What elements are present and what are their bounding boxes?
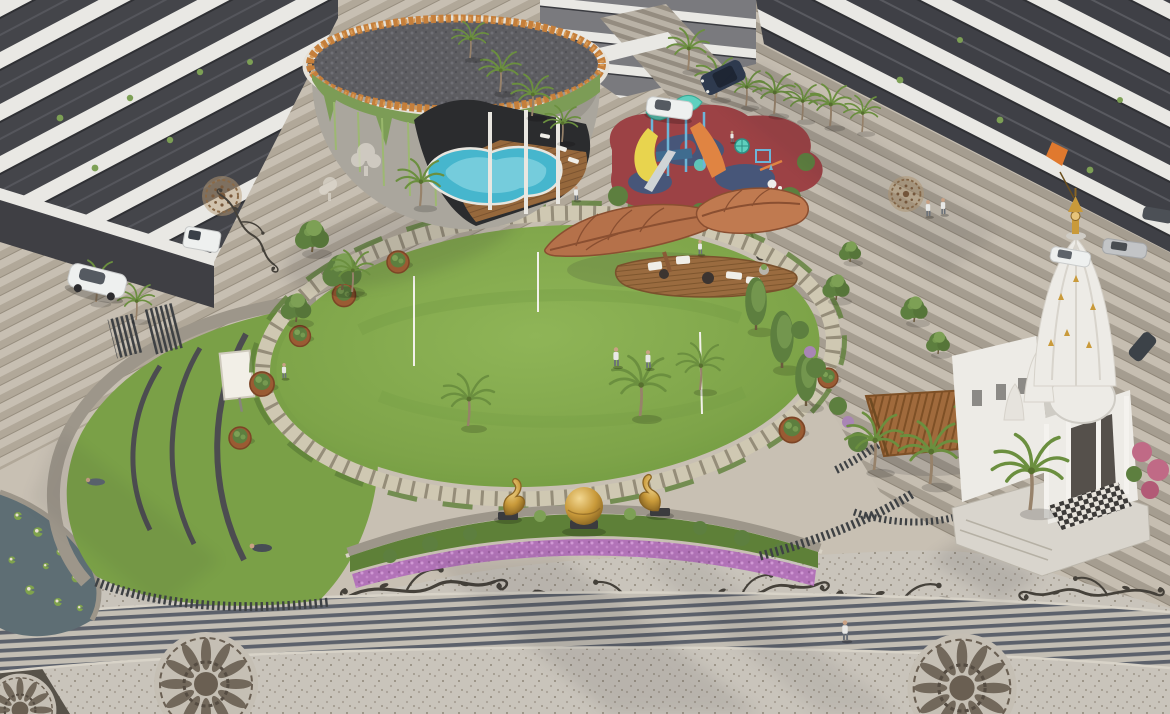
clubhouse-green-roof (314, 21, 598, 107)
scene-canvas (0, 0, 1170, 714)
architectural-render (0, 0, 1170, 714)
